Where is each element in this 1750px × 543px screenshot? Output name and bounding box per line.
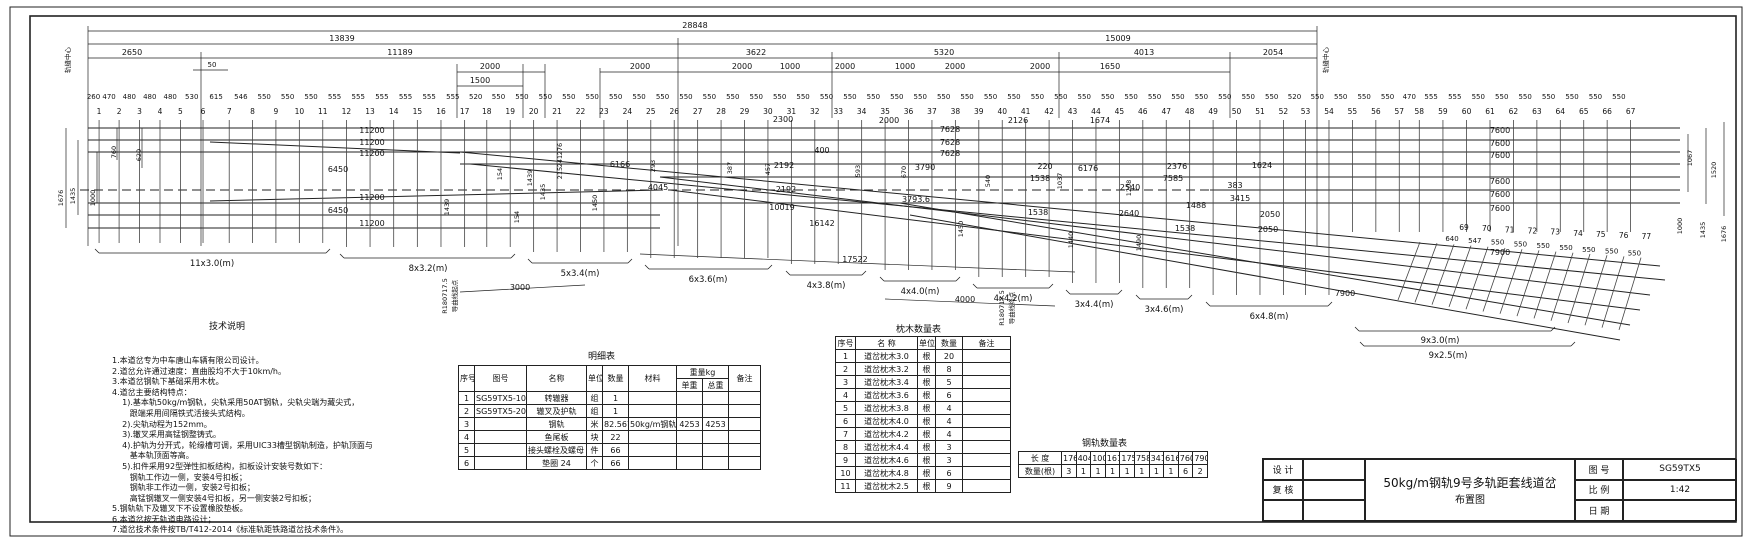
note-line: 钢轨工作边一侧，安装4号扣板； bbox=[112, 473, 452, 484]
svg-text:2000: 2000 bbox=[732, 62, 752, 71]
svg-text:2376: 2376 bbox=[1167, 162, 1187, 171]
svg-text:3793.6: 3793.6 bbox=[902, 195, 930, 204]
date-value bbox=[1623, 500, 1737, 521]
svg-text:1: 1 bbox=[97, 107, 102, 116]
svg-text:1435: 1435 bbox=[1699, 222, 1707, 239]
svg-text:63: 63 bbox=[1532, 107, 1542, 116]
svg-text:1676: 1676 bbox=[57, 190, 65, 207]
svg-text:9x3.0(m): 9x3.0(m) bbox=[1421, 336, 1460, 346]
svg-text:8: 8 bbox=[250, 107, 255, 116]
title-block: 设 计 50kg/m钢轨9号多轨距套线道岔 布置图 图 号 SG59TX5 复 … bbox=[1262, 458, 1736, 522]
svg-text:4045: 4045 bbox=[648, 183, 668, 192]
svg-text:7628: 7628 bbox=[940, 138, 960, 147]
sleeper-table-title: 枕木数量表 bbox=[896, 322, 941, 335]
svg-text:4000: 4000 bbox=[955, 295, 975, 304]
svg-text:2000: 2000 bbox=[835, 62, 855, 71]
svg-text:520: 520 bbox=[1288, 93, 1301, 101]
svg-text:260: 260 bbox=[87, 93, 100, 101]
drawing-title: 50kg/m钢轨9号多轨距套线道岔 布置图 bbox=[1365, 459, 1575, 521]
svg-text:11200: 11200 bbox=[359, 149, 384, 158]
svg-text:75: 75 bbox=[1596, 230, 1606, 239]
svg-text:导曲线终点: 导曲线终点 bbox=[1007, 291, 1016, 324]
svg-text:13839: 13839 bbox=[329, 34, 354, 43]
svg-text:550: 550 bbox=[1357, 93, 1370, 101]
svg-text:593: 593 bbox=[854, 165, 862, 177]
table-row: 3钢轨米82.56750kg/m钢轨42534253 bbox=[459, 418, 761, 431]
svg-text:23: 23 bbox=[599, 107, 609, 116]
technical-notes: 技术说明 1.本道岔专为中车唐山车辆有限公司设计。2.道岔允许通过速度：直曲股均… bbox=[112, 301, 452, 543]
rail-table: 长 度1762840451001916142175227585341561667… bbox=[1018, 451, 1208, 478]
svg-text:2300: 2300 bbox=[773, 115, 793, 124]
table-row: 5道岔枕木3.8根4 bbox=[836, 402, 1011, 415]
svg-text:3x4.6(m): 3x4.6(m) bbox=[1145, 305, 1184, 315]
table-row: 11道岔枕木2.5根9 bbox=[836, 480, 1011, 493]
svg-text:32: 32 bbox=[810, 107, 820, 116]
col-material: 材料 bbox=[629, 366, 677, 392]
note-line: 5).扣件采用92型弹性扣板结构，扣板设计安装号数如下： bbox=[112, 462, 452, 473]
svg-text:530: 530 bbox=[185, 93, 198, 101]
svg-text:480: 480 bbox=[123, 93, 136, 101]
svg-text:28848: 28848 bbox=[682, 21, 707, 30]
svg-text:29: 29 bbox=[740, 107, 750, 116]
table-row: 8道岔枕木4.4根3 bbox=[836, 441, 1011, 454]
table-row: 7道岔枕木4.2根4 bbox=[836, 428, 1011, 441]
svg-text:154: 154 bbox=[513, 211, 521, 223]
notes-title: 技术说明 bbox=[112, 322, 342, 333]
svg-text:550: 550 bbox=[679, 93, 692, 101]
svg-text:2000: 2000 bbox=[879, 116, 899, 125]
svg-text:555: 555 bbox=[446, 93, 459, 101]
svg-text:7600: 7600 bbox=[1490, 126, 1510, 135]
svg-text:65: 65 bbox=[1579, 107, 1589, 116]
svg-text:1538: 1538 bbox=[1175, 224, 1195, 233]
svg-text:10019: 10019 bbox=[769, 203, 794, 212]
svg-text:1674: 1674 bbox=[1090, 116, 1110, 125]
svg-text:50: 50 bbox=[1232, 107, 1242, 116]
svg-text:18: 18 bbox=[482, 107, 492, 116]
svg-text:71: 71 bbox=[1505, 225, 1515, 234]
svg-text:4013: 4013 bbox=[1134, 48, 1154, 57]
table-row: 数量(根)3111111162 bbox=[1019, 465, 1208, 478]
svg-text:11200: 11200 bbox=[359, 138, 384, 147]
svg-text:615: 615 bbox=[209, 93, 222, 101]
col-seq: 序号 bbox=[459, 366, 475, 392]
svg-text:550: 550 bbox=[773, 93, 786, 101]
svg-text:7600: 7600 bbox=[1490, 190, 1510, 199]
svg-text:670: 670 bbox=[900, 166, 908, 178]
svg-text:1000: 1000 bbox=[895, 62, 915, 71]
svg-text:550: 550 bbox=[492, 93, 505, 101]
svg-text:69: 69 bbox=[1459, 223, 1469, 232]
svg-text:7585: 7585 bbox=[1163, 174, 1183, 183]
svg-text:383: 383 bbox=[1227, 181, 1242, 190]
svg-text:3000: 3000 bbox=[510, 283, 530, 292]
svg-text:54: 54 bbox=[1324, 107, 1334, 116]
svg-text:1538: 1538 bbox=[1030, 174, 1050, 183]
table-row: 6垫圈 24个66 bbox=[459, 457, 761, 470]
svg-text:1538: 1538 bbox=[1028, 208, 1048, 217]
svg-text:470: 470 bbox=[1403, 93, 1416, 101]
svg-text:550: 550 bbox=[703, 93, 716, 101]
svg-text:7: 7 bbox=[227, 107, 232, 116]
svg-text:6176: 6176 bbox=[1078, 164, 1098, 173]
svg-text:61: 61 bbox=[1485, 107, 1495, 116]
svg-text:4: 4 bbox=[158, 107, 163, 116]
svg-text:1624: 1624 bbox=[1252, 161, 1272, 170]
svg-text:1490: 1490 bbox=[1135, 235, 1143, 252]
svg-text:19: 19 bbox=[505, 107, 515, 116]
note-line: 1.本道岔专为中车唐山车辆有限公司设计。 bbox=[112, 356, 452, 367]
svg-text:550: 550 bbox=[1031, 93, 1044, 101]
svg-text:550: 550 bbox=[1124, 93, 1137, 101]
table-row: 10道岔枕木4.8根6 bbox=[836, 467, 1011, 480]
svg-text:550: 550 bbox=[1514, 240, 1527, 248]
fig-no-value: SG59TX5 bbox=[1623, 459, 1737, 480]
note-line: 4).护轨为分开式，轮缘槽可调，采用UIC33槽型钢轨制造，护轨顶面与 bbox=[112, 441, 452, 452]
svg-text:2050: 2050 bbox=[1258, 225, 1278, 234]
svg-text:8x3.2(m): 8x3.2(m) bbox=[409, 264, 448, 274]
svg-text:16142: 16142 bbox=[809, 219, 834, 228]
svg-text:3x4.4(m): 3x4.4(m) bbox=[1075, 300, 1114, 310]
check-label: 复 核 bbox=[1263, 480, 1303, 501]
svg-text:555: 555 bbox=[375, 93, 388, 101]
svg-text:550: 550 bbox=[281, 93, 294, 101]
svg-text:550: 550 bbox=[1589, 93, 1602, 101]
svg-text:2000: 2000 bbox=[630, 62, 650, 71]
svg-text:550: 550 bbox=[1472, 93, 1485, 101]
svg-text:7600: 7600 bbox=[1490, 177, 1510, 186]
svg-text:77: 77 bbox=[1642, 232, 1652, 241]
svg-text:55: 55 bbox=[1348, 107, 1358, 116]
svg-text:555: 555 bbox=[1424, 93, 1437, 101]
svg-text:24: 24 bbox=[623, 107, 633, 116]
note-line: 6.本道岔按无轨道电路设计； bbox=[112, 515, 452, 526]
note-line: 2.道岔允许通过速度：直曲股均不大于10km/h。 bbox=[112, 367, 452, 378]
svg-text:480: 480 bbox=[164, 93, 177, 101]
svg-text:276: 276 bbox=[556, 143, 564, 155]
svg-text:7600: 7600 bbox=[1490, 151, 1510, 160]
svg-text:R180717.5: R180717.5 bbox=[998, 290, 1006, 326]
svg-text:轨缝中心: 轨缝中心 bbox=[1321, 47, 1330, 74]
svg-text:555: 555 bbox=[328, 93, 341, 101]
note-line: 跟端采用间隔铁式活接头式结构。 bbox=[112, 409, 452, 420]
svg-text:56: 56 bbox=[1371, 107, 1381, 116]
col-weight-group: 重量kg bbox=[677, 366, 729, 379]
svg-text:555: 555 bbox=[422, 93, 435, 101]
svg-text:66: 66 bbox=[1602, 107, 1612, 116]
note-line: 基本轨顶面等高。 bbox=[112, 451, 452, 462]
svg-text:11x3.0(m): 11x3.0(m) bbox=[190, 259, 234, 269]
svg-text:520: 520 bbox=[469, 93, 482, 101]
sleeper-number-row: 1234567891011121314151617181920212223242… bbox=[97, 107, 1652, 241]
svg-text:550: 550 bbox=[1171, 93, 1184, 101]
svg-text:550: 550 bbox=[562, 93, 575, 101]
svg-text:53: 53 bbox=[1301, 107, 1311, 116]
svg-text:550: 550 bbox=[609, 93, 622, 101]
svg-text:550: 550 bbox=[1148, 93, 1161, 101]
col-total-weight: 总重 bbox=[703, 379, 729, 392]
svg-text:387: 387 bbox=[726, 162, 734, 174]
svg-text:30: 30 bbox=[763, 107, 773, 116]
svg-text:58: 58 bbox=[1415, 107, 1425, 116]
svg-text:550: 550 bbox=[843, 93, 856, 101]
svg-text:540: 540 bbox=[984, 175, 992, 187]
svg-text:550: 550 bbox=[1242, 93, 1255, 101]
svg-text:550: 550 bbox=[796, 93, 809, 101]
svg-text:43: 43 bbox=[1068, 107, 1078, 116]
table-row: 6道岔枕木4.0根4 bbox=[836, 415, 1011, 428]
date-cell-left bbox=[1263, 500, 1303, 521]
svg-text:6x3.6(m): 6x3.6(m) bbox=[689, 275, 728, 285]
svg-text:400: 400 bbox=[814, 146, 829, 155]
col-remark: 备注 bbox=[729, 366, 761, 392]
svg-text:550: 550 bbox=[1605, 248, 1618, 256]
svg-text:9x2.5(m): 9x2.5(m) bbox=[1429, 351, 1468, 361]
svg-text:550: 550 bbox=[258, 93, 271, 101]
table-row: 1道岔枕木3.0根20 bbox=[836, 350, 1011, 363]
notes-body: 1.本道岔专为中车唐山车辆有限公司设计。2.道岔允许通过速度：直曲股均不大于10… bbox=[112, 356, 452, 536]
col-unit-weight: 单重 bbox=[677, 379, 703, 392]
svg-text:457: 457 bbox=[764, 163, 772, 175]
col-fig: 图号 bbox=[475, 366, 527, 392]
svg-text:11200: 11200 bbox=[359, 126, 384, 135]
note-line: 5.钢轨轨下及辙叉下不设置橡胶垫板。 bbox=[112, 504, 452, 515]
svg-text:2192: 2192 bbox=[776, 185, 796, 194]
svg-text:550: 550 bbox=[1582, 246, 1595, 254]
svg-text:42: 42 bbox=[1044, 107, 1054, 116]
svg-text:1439: 1439 bbox=[443, 199, 451, 216]
svg-text:6450: 6450 bbox=[328, 165, 348, 174]
svg-text:546: 546 bbox=[234, 93, 248, 101]
svg-text:51: 51 bbox=[1255, 107, 1265, 116]
svg-text:轨缝中心: 轨缝中心 bbox=[63, 47, 72, 74]
svg-text:1488: 1488 bbox=[1186, 201, 1206, 210]
svg-text:11200: 11200 bbox=[359, 193, 384, 202]
note-line: 3).辙叉采用高锰钢整铸式。 bbox=[112, 430, 452, 441]
svg-text:44: 44 bbox=[1091, 107, 1101, 116]
svg-text:1037: 1037 bbox=[1056, 173, 1064, 190]
table-row: 2SG59TX5-200辙叉及护轨组1 bbox=[459, 405, 761, 418]
svg-text:2054: 2054 bbox=[1263, 48, 1283, 57]
svg-text:59: 59 bbox=[1438, 107, 1448, 116]
svg-text:215: 215 bbox=[556, 167, 564, 179]
svg-text:64: 64 bbox=[1556, 107, 1566, 116]
note-line: 钢轨非工作边一侧，安装2号扣板； bbox=[112, 483, 452, 494]
svg-text:2650: 2650 bbox=[122, 48, 142, 57]
svg-text:550: 550 bbox=[656, 93, 669, 101]
svg-text:11: 11 bbox=[318, 107, 328, 116]
svg-text:550: 550 bbox=[960, 93, 973, 101]
svg-text:13: 13 bbox=[365, 107, 375, 116]
svg-text:550: 550 bbox=[937, 93, 950, 101]
svg-text:555: 555 bbox=[1448, 93, 1461, 101]
svg-text:52: 52 bbox=[1279, 107, 1289, 116]
svg-text:154: 154 bbox=[496, 168, 504, 180]
svg-text:60: 60 bbox=[1462, 107, 1472, 116]
svg-text:2192: 2192 bbox=[774, 161, 794, 170]
svg-text:34: 34 bbox=[857, 107, 867, 116]
svg-text:37: 37 bbox=[927, 107, 937, 116]
svg-text:470: 470 bbox=[102, 93, 115, 101]
svg-text:1450: 1450 bbox=[591, 195, 599, 212]
svg-text:7600: 7600 bbox=[1490, 204, 1510, 213]
svg-text:2000: 2000 bbox=[1030, 62, 1050, 71]
parts-table: 序号 图号 名称 单位 数量 材料 重量kg 备注 单重 总重 1SG59TX5… bbox=[458, 365, 761, 470]
svg-text:1439: 1439 bbox=[526, 170, 534, 187]
fig-no-label: 图 号 bbox=[1575, 459, 1623, 480]
check-value bbox=[1303, 480, 1365, 501]
svg-text:2640: 2640 bbox=[1119, 209, 1139, 218]
svg-text:40: 40 bbox=[997, 107, 1007, 116]
svg-text:550: 550 bbox=[515, 93, 528, 101]
svg-text:555: 555 bbox=[399, 93, 412, 101]
svg-text:550: 550 bbox=[1334, 93, 1347, 101]
note-line: 3.本道岔钢轨下基础采用木枕。 bbox=[112, 377, 452, 388]
svg-text:62: 62 bbox=[1509, 107, 1519, 116]
svg-text:4x3.8(m): 4x3.8(m) bbox=[807, 281, 846, 291]
svg-text:7900: 7900 bbox=[1335, 289, 1355, 298]
svg-text:22: 22 bbox=[576, 107, 586, 116]
svg-text:7628: 7628 bbox=[940, 125, 960, 134]
svg-text:49: 49 bbox=[1208, 107, 1218, 116]
svg-text:17: 17 bbox=[460, 107, 470, 116]
svg-text:2: 2 bbox=[117, 107, 122, 116]
svg-text:38: 38 bbox=[951, 107, 961, 116]
svg-text:7600: 7600 bbox=[1490, 139, 1510, 148]
svg-text:550: 550 bbox=[1195, 93, 1208, 101]
svg-text:550: 550 bbox=[890, 93, 903, 101]
svg-text:50: 50 bbox=[208, 61, 217, 69]
svg-text:550: 550 bbox=[726, 93, 739, 101]
table-row: 2道岔枕木3.2根8 bbox=[836, 363, 1011, 376]
table-row: 4道岔枕木3.6根6 bbox=[836, 389, 1011, 402]
svg-text:550: 550 bbox=[1491, 239, 1504, 247]
svg-text:550: 550 bbox=[1565, 93, 1578, 101]
svg-text:2000: 2000 bbox=[945, 62, 965, 71]
svg-text:620: 620 bbox=[135, 149, 143, 161]
svg-text:6x4.8(m): 6x4.8(m) bbox=[1250, 312, 1289, 322]
svg-text:550: 550 bbox=[1078, 93, 1091, 101]
col-qty: 数量 bbox=[603, 366, 629, 392]
svg-text:35: 35 bbox=[880, 107, 890, 116]
svg-text:1500: 1500 bbox=[470, 76, 490, 85]
svg-text:6450: 6450 bbox=[328, 206, 348, 215]
svg-text:1000: 1000 bbox=[89, 190, 97, 207]
drawing-title-line1: 50kg/m钢轨9号多轨距套线道岔 bbox=[1383, 474, 1556, 491]
table-row: 5接头螺栓及螺母 M24件66 bbox=[459, 444, 761, 457]
sleeper-spacing-row: 2604704804804805306155465505505505555555… bbox=[87, 93, 1641, 257]
svg-text:25: 25 bbox=[646, 107, 656, 116]
svg-text:1435: 1435 bbox=[539, 184, 547, 201]
svg-text:27: 27 bbox=[693, 107, 703, 116]
svg-text:550: 550 bbox=[914, 93, 927, 101]
svg-text:550: 550 bbox=[1381, 93, 1394, 101]
svg-text:14: 14 bbox=[389, 107, 399, 116]
svg-text:72: 72 bbox=[1528, 226, 1538, 235]
svg-text:48: 48 bbox=[1185, 107, 1195, 116]
svg-text:12: 12 bbox=[342, 107, 352, 116]
svg-text:3415: 3415 bbox=[1230, 194, 1250, 203]
svg-text:1067: 1067 bbox=[1686, 150, 1694, 167]
svg-text:550: 550 bbox=[304, 93, 317, 101]
svg-text:36: 36 bbox=[904, 107, 914, 116]
svg-text:9: 9 bbox=[274, 107, 279, 116]
svg-text:21: 21 bbox=[552, 107, 562, 116]
svg-text:4x4.0(m): 4x4.0(m) bbox=[901, 287, 940, 297]
design-value bbox=[1303, 459, 1365, 480]
svg-text:220: 220 bbox=[1037, 162, 1052, 171]
date-label: 日 期 bbox=[1575, 500, 1623, 521]
scale-value: 1:42 bbox=[1623, 480, 1737, 501]
note-line: 1).基本轨50kg/m钢轨，尖轨采用50AT钢轨，尖轨尖端为藏尖式， bbox=[112, 398, 452, 409]
svg-text:5x3.4(m): 5x3.4(m) bbox=[561, 269, 600, 279]
drawing-title-line2: 布置图 bbox=[1455, 491, 1485, 506]
table-row: 4鱼尾板块22 bbox=[459, 431, 761, 444]
svg-text:550: 550 bbox=[1559, 244, 1572, 252]
svg-text:3790: 3790 bbox=[915, 163, 935, 172]
svg-text:550: 550 bbox=[1007, 93, 1020, 101]
svg-text:20: 20 bbox=[529, 107, 539, 116]
svg-text:70: 70 bbox=[1482, 224, 1492, 233]
svg-text:640: 640 bbox=[1445, 235, 1458, 243]
svg-text:2126: 2126 bbox=[1008, 116, 1028, 125]
svg-text:550: 550 bbox=[1054, 93, 1067, 101]
svg-text:45: 45 bbox=[1115, 107, 1125, 116]
svg-text:67: 67 bbox=[1626, 107, 1636, 116]
svg-text:550: 550 bbox=[1101, 93, 1114, 101]
svg-text:73: 73 bbox=[1550, 228, 1560, 237]
svg-text:480: 480 bbox=[143, 93, 156, 101]
svg-text:550: 550 bbox=[539, 93, 552, 101]
svg-text:550: 550 bbox=[1628, 249, 1641, 257]
svg-text:46: 46 bbox=[1138, 107, 1148, 116]
svg-text:1676: 1676 bbox=[1720, 226, 1728, 243]
svg-text:1450: 1450 bbox=[957, 221, 965, 238]
svg-text:28: 28 bbox=[716, 107, 726, 116]
svg-text:74: 74 bbox=[1573, 229, 1583, 238]
svg-text:550: 550 bbox=[867, 93, 880, 101]
svg-text:76: 76 bbox=[1619, 231, 1629, 240]
svg-text:550: 550 bbox=[750, 93, 763, 101]
table-row: 3道岔枕木3.4根5 bbox=[836, 376, 1011, 389]
svg-text:15: 15 bbox=[413, 107, 423, 116]
svg-text:2000: 2000 bbox=[480, 62, 500, 71]
svg-text:7628: 7628 bbox=[940, 149, 960, 158]
sleeper-table: 序号名 称单位数量备注 1道岔枕木3.0根202道岔枕木3.2根83道岔枕木3.… bbox=[835, 336, 1011, 493]
svg-text:5320: 5320 bbox=[934, 48, 954, 57]
svg-text:1435: 1435 bbox=[69, 188, 77, 205]
svg-text:26: 26 bbox=[669, 107, 679, 116]
svg-text:293: 293 bbox=[649, 160, 657, 172]
svg-text:10: 10 bbox=[295, 107, 305, 116]
parts-table-title: 明细表 bbox=[588, 349, 615, 362]
svg-text:241: 241 bbox=[556, 155, 564, 167]
svg-text:3622: 3622 bbox=[746, 48, 766, 57]
svg-text:550: 550 bbox=[1265, 93, 1278, 101]
table-row: 长 度1762840451001916142175227585341561667… bbox=[1019, 452, 1208, 465]
svg-text:1440: 1440 bbox=[1067, 232, 1075, 249]
svg-text:1650: 1650 bbox=[1100, 62, 1120, 71]
svg-text:550: 550 bbox=[1495, 93, 1508, 101]
svg-text:1520: 1520 bbox=[1710, 162, 1718, 179]
note-line: 2).尖轨动程为152mm。 bbox=[112, 420, 452, 431]
svg-text:1000: 1000 bbox=[1676, 218, 1684, 235]
svg-text:550: 550 bbox=[1218, 93, 1231, 101]
svg-text:550: 550 bbox=[586, 93, 599, 101]
svg-text:2050: 2050 bbox=[1260, 210, 1280, 219]
svg-text:39: 39 bbox=[974, 107, 984, 116]
svg-text:16: 16 bbox=[436, 107, 446, 116]
